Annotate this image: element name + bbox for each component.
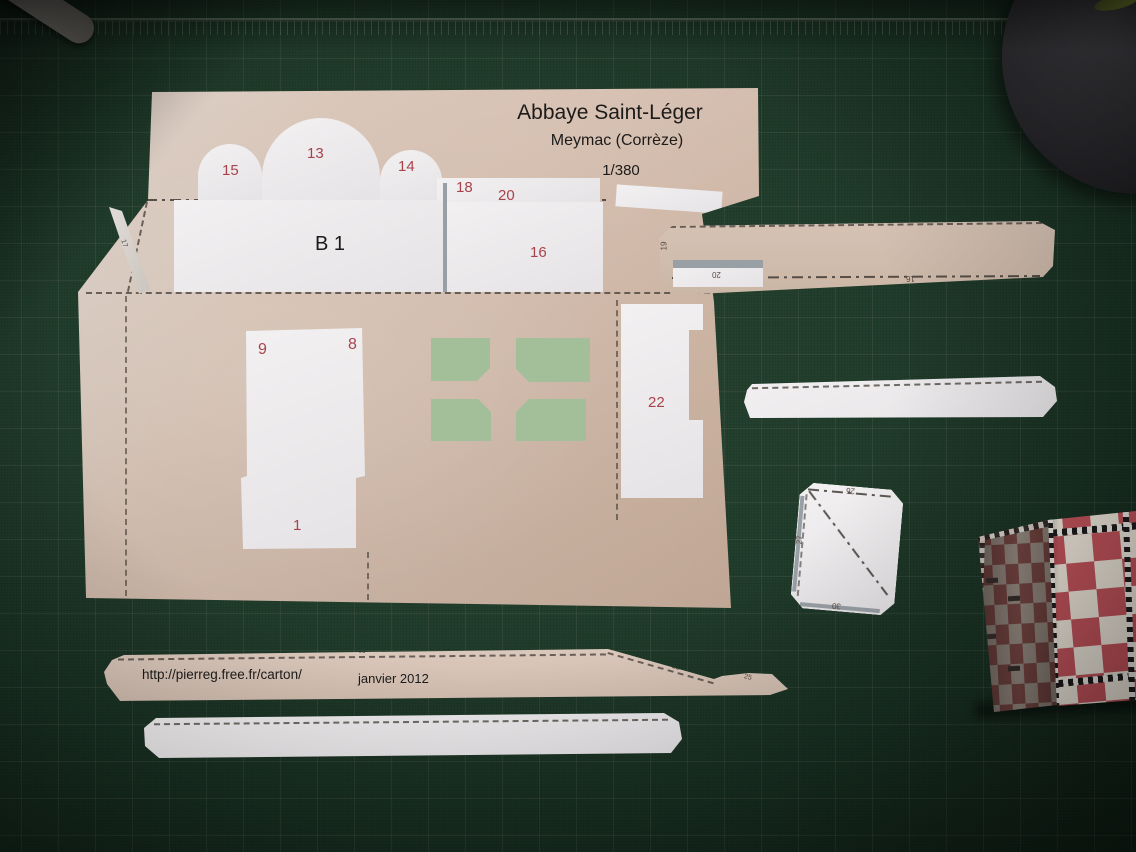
window-pane-bottom-right	[516, 399, 586, 441]
date-text: janvier 2012	[358, 672, 429, 687]
piece-number-22: 22	[648, 395, 665, 410]
piece-number-20: 20	[498, 188, 515, 203]
sheet-title: Abbaye Saint-Léger	[460, 101, 760, 125]
piece-number-15: 15	[222, 163, 239, 178]
left-face-window-3	[1008, 596, 1020, 602]
mat-ruler-ticks	[0, 21, 1136, 35]
url-strip-fold	[118, 653, 606, 660]
papercraft-sheet: Abbaye Saint-Léger Meymac (Corrèze) 1/38…	[78, 86, 762, 614]
square-flap-number-26: 26	[846, 486, 856, 495]
fold-line-mid	[86, 292, 710, 294]
left-face-window-1	[986, 578, 998, 584]
sheet-subtitle: Meymac (Corrèze)	[467, 132, 767, 150]
mat-ruler-line	[0, 18, 1136, 20]
piece-b1: B 1	[174, 116, 460, 292]
fold-line-right	[616, 300, 618, 520]
piece-number-9: 9	[258, 342, 267, 358]
piece-16-area	[443, 202, 603, 292]
long-flap-number-16: 16	[906, 274, 915, 282]
fold-line-center	[367, 552, 369, 600]
cutting-mat-scene: Abbaye Saint-Léger Meymac (Corrèze) 1/38…	[0, 0, 1136, 852]
piece-number-13: 13	[307, 146, 324, 161]
fold-line-left	[125, 296, 127, 596]
b1-label: B 1	[300, 233, 360, 256]
sheet-scale: 1/380	[471, 162, 771, 179]
window-pane-top-right	[516, 338, 590, 382]
piece-number-1: 1	[293, 518, 301, 533]
square-flap-fold-diagonal	[808, 491, 888, 596]
piece-number-16: 16	[530, 245, 547, 260]
white-strip-bottom-fold	[154, 719, 668, 725]
long-flap-gray-edge	[673, 260, 763, 268]
square-flap-number-27: 27	[796, 535, 805, 545]
piece-number-8: 8	[348, 337, 357, 353]
url-text: http://pierreg.free.fr/carton/	[142, 667, 302, 683]
tower-piece: 9 8 1	[238, 326, 368, 552]
piece-number-14: 14	[398, 159, 415, 174]
long-flap-number-20: 20	[712, 270, 721, 278]
long-flap-number-19: 19	[660, 242, 668, 251]
square-flap-number-30: 30	[832, 601, 842, 610]
window-pane-bottom-left	[431, 399, 491, 441]
window-pane-top-left	[431, 338, 490, 381]
url-strip-number-25: 25	[743, 673, 752, 682]
cut-edge-line	[443, 183, 447, 292]
left-face-window-4	[1008, 666, 1020, 672]
square-flap-piece: 26 27 30	[790, 482, 905, 617]
piece-number-18: 18	[456, 180, 473, 195]
